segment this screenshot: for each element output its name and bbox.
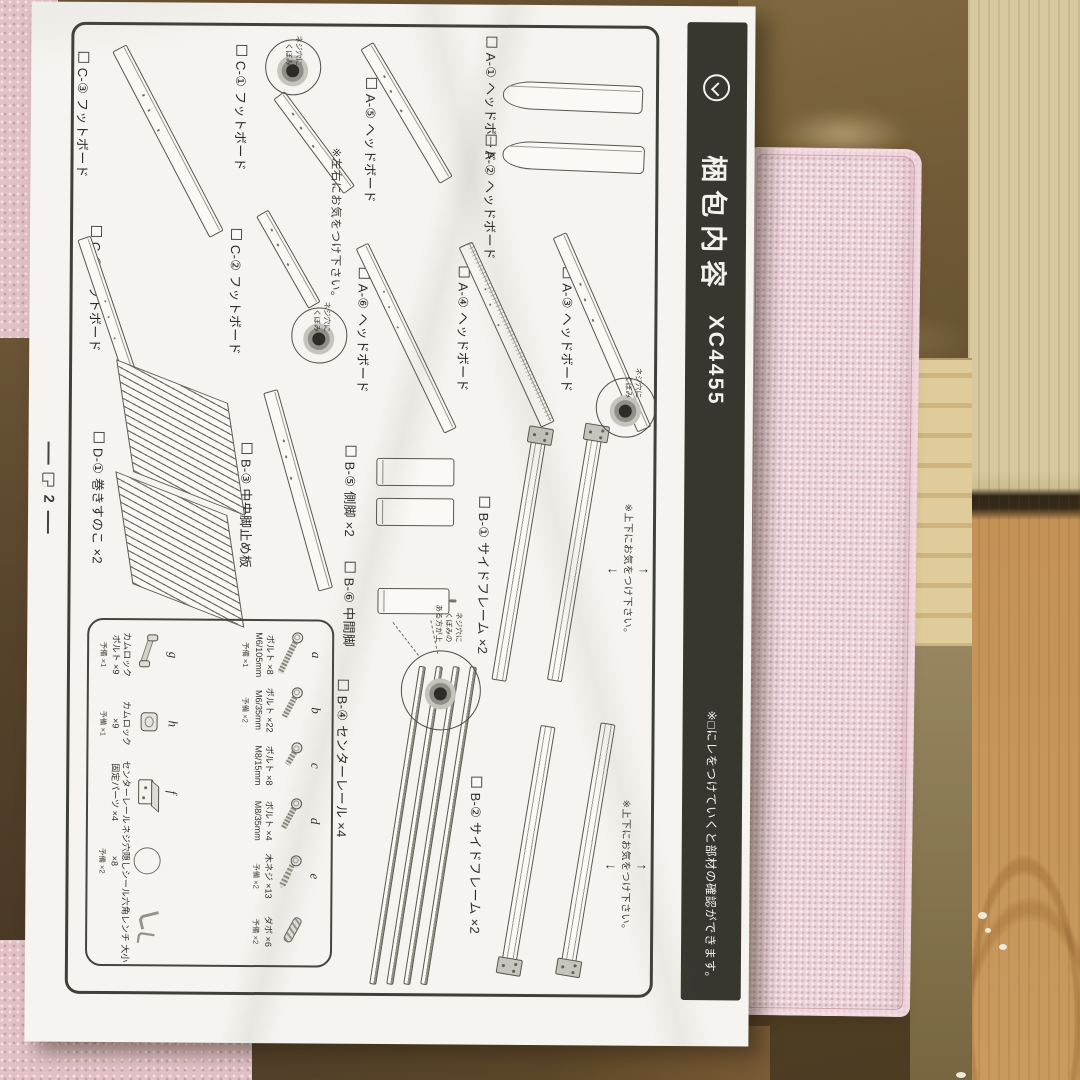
checkbox-c3 [78, 52, 89, 63]
checkbox-c4 [91, 226, 102, 237]
paint-speck [985, 928, 991, 933]
part-label-text: B-⑤ 側脚 ×2 [341, 462, 361, 538]
hardware-label: 六角レンチ 大小 [119, 897, 131, 963]
wood-screw-icon [273, 851, 307, 901]
part-label-b4: B-④ センターレール ×4 [333, 680, 353, 838]
screw-head [291, 855, 302, 866]
hardware-label: センターレール固定パーツ ×4 [109, 761, 132, 824]
hardware-item-dowel: ダボ ×6予備 ×2 [250, 904, 323, 960]
hardware-box: aボルト ×8M6/105mm予備 ×1bボルト ×22M6/35mm予備 ×2… [85, 618, 334, 968]
page-title: 梱包内容 [696, 155, 736, 295]
hardware-label-line: M8/35mm [251, 801, 263, 841]
leg-pin [449, 599, 456, 602]
part-label-c1: C-① フットボード [231, 45, 251, 171]
page-number: 2 [40, 442, 57, 534]
hardware-spare-note: 予備 ×1 [240, 642, 251, 668]
hardware-spare-note: 予備 ×1 [98, 642, 109, 668]
title-bar: 梱包内容 XC4455 ※□にレをつけていくと部材の確認ができます。 [681, 22, 748, 1000]
hardware-item-e: e木ネジ ×13予備 ×2 [250, 848, 323, 904]
camlock-icon [132, 698, 166, 748]
part-label-text: A-③ ヘッドボード [558, 283, 578, 392]
part-label-b6: B-⑥ 中間脚 [340, 562, 360, 648]
bolt-long-icon [275, 630, 309, 680]
sideframe-bracket [527, 425, 554, 446]
hardware-label-line: カムロック [121, 632, 133, 677]
part-label-text: C-③ フットボード [73, 68, 93, 178]
hardware-label-line: 六角レンチ 大小 [119, 897, 131, 963]
checkbox-c1 [236, 45, 247, 56]
circle-chevron-icon [703, 74, 730, 101]
hardware-label-line: M8/15mm [252, 745, 264, 785]
paint-speck [978, 912, 987, 919]
pink-fabric-box [738, 147, 922, 1017]
camlock-body [141, 713, 158, 732]
fixing-block-body [139, 779, 154, 804]
paint-speck [956, 1072, 966, 1078]
caution-text: ※上下にお気をつけ下さい。 [621, 504, 637, 639]
part-leg-b5 [376, 458, 454, 487]
hex-wrench-large [138, 911, 162, 930]
hardware-item-a: aボルト ×8M6/105mm予備 ×1 [240, 627, 324, 683]
screw-hole-icon [434, 687, 447, 700]
hardware-item-screw-hole-sticker: ネジ穴隠しシール×8予備 ×2 [96, 832, 180, 890]
screw-hole-icon [312, 332, 325, 345]
hardware-label-line: ×8 [108, 825, 120, 897]
part-label-text: C-② フットボード [226, 245, 246, 355]
part-label-text: B-① サイドフレーム ×2 [474, 513, 494, 655]
page-number-value: 2 [40, 495, 56, 503]
bolt-shaft [285, 751, 297, 766]
hardware-letter: h [166, 720, 181, 727]
arrow-down-icon: ↓ [607, 567, 621, 575]
part-label-text: D-① 巻きすのこ ×2 [89, 448, 109, 564]
part-leg-b5 [376, 498, 454, 527]
part-label-b2: B-② サイドフレーム ×2 [466, 777, 486, 935]
checkbox-a2 [486, 135, 497, 146]
screw-hole-icon [619, 405, 632, 418]
bolt-shaft [282, 696, 298, 718]
arrow-up-icon: ↑ [638, 567, 652, 575]
checkbox-a1 [486, 37, 497, 48]
hardware-letter: c [308, 763, 323, 769]
hardware-label-line: ネジ穴隠しシール [120, 825, 132, 897]
checkbox-b5 [345, 446, 356, 457]
part-label-d1: D-① 巻きすのこ ×2 [89, 432, 109, 564]
camlock-bolt-icon [132, 630, 166, 680]
bracket-holes [602, 429, 605, 432]
part-label-text: A-② ヘッドボード [481, 151, 501, 260]
hardware-label-line: ボルト ×9 [110, 632, 122, 677]
part-label-text: A-⑥ ヘッドボード [354, 284, 374, 393]
hardware-item-b: bボルト ×22M6/35mm予備 ×2 [240, 682, 324, 738]
hardware-spare-note: 予備 ×1 [98, 710, 109, 736]
hardware-label-line: ボルト ×22 [263, 688, 275, 733]
camlock-bolt-disc [139, 660, 150, 667]
wood-strip-middle [910, 358, 972, 648]
hardware-item-f: fセンターレール固定パーツ ×4 [109, 764, 181, 821]
hardware-label-line: ボルト ×8 [263, 745, 275, 785]
hardware-row-1: aボルト ×8M6/105mm予備 ×1bボルト ×22M6/35mm予備 ×2… [238, 627, 324, 960]
hardware-label: ボルト ×22M6/35mm [252, 688, 275, 733]
bracket-holes [515, 963, 518, 966]
screw-hole-sticker-icon [131, 836, 165, 886]
part-label-c2: C-② フットボード [226, 229, 246, 355]
hardware-letter: b [309, 707, 324, 714]
hex-wrench-small [137, 931, 155, 945]
hardware-label: ボルト ×4M8/35mm [251, 801, 274, 841]
hardware-letter: g [167, 652, 182, 659]
wood-strip-shadow [910, 646, 972, 1080]
page-number-dash [47, 442, 49, 465]
checkbox-b4 [338, 680, 349, 691]
checkbox-b1 [479, 497, 490, 508]
model-number: XC4455 [703, 315, 728, 406]
arrow-down-icon: ↓ [605, 863, 619, 871]
hardware-spare-note: 予備 ×2 [250, 919, 261, 945]
screw-hole-icon [286, 64, 299, 77]
hardware-label: カムロック×9 [109, 701, 132, 746]
checkbox-c2 [231, 229, 242, 240]
screw-hole-4-callout-circle [401, 650, 482, 731]
caution-up-down-2: ↑※上下にお気をつけ下さい。↓ [604, 800, 650, 935]
hardware-label-line: センターレール [120, 761, 132, 824]
hardware-spare-note: 予備 ×2 [240, 697, 251, 723]
arrow-up-icon: ↑ [636, 863, 650, 871]
caution-text: ※上下にお気をつけ下さい。 [619, 800, 635, 935]
bolt-mid-icon [275, 685, 309, 735]
checkbox-a5 [366, 78, 377, 89]
manual-page: 梱包内容 XC4455 ※□にレをつけていくと部材の確認ができます。 A-① ヘ… [26, 3, 749, 1044]
hardware-item-c: cボルト ×8M8/15mm [252, 738, 324, 794]
hardware-letter: a [309, 652, 324, 659]
hardware-label: 木ネジ ×13 [262, 854, 274, 899]
part-label-a6: A-⑥ ヘッドボード [354, 268, 374, 393]
bolt-short-icon [274, 741, 308, 791]
hardware-letter: f [166, 791, 181, 795]
hardware-label-line: カムロック [121, 701, 133, 746]
bolt-shaft [277, 641, 297, 674]
part-label-c3: C-③ フットボード [73, 52, 93, 178]
hardware-label-line: 木ネジ ×13 [262, 854, 274, 899]
hardware-label-line: ボルト ×8 [264, 632, 276, 677]
caution-up-down-1: ↑※上下にお気をつけ下さい。↓ [606, 504, 652, 639]
hardware-label: ダボ ×6 [262, 916, 273, 947]
checkbox-d1 [94, 432, 105, 443]
instruction-sheet-paper: 梱包内容 XC4455 ※□にレをつけていくと部材の確認ができます。 A-① ヘ… [24, 1, 755, 1046]
hardware-item-g: gカムロックボルト ×9予備 ×1 [98, 626, 182, 684]
hardware-item-hex-wrench: 六角レンチ 大小 [119, 901, 180, 958]
caution-left-right: ※左右にお気をつけ下さい。 [328, 148, 345, 304]
hardware-spare-note: 予備 ×2 [250, 863, 261, 889]
hardware-row-2: gカムロックボルト ×9予備 ×1hカムロック×9予備 ×1fセンターレール固定… [96, 626, 182, 959]
hardware-label: ネジ穴隠しシール×8 [108, 825, 131, 897]
hardware-label: ボルト ×8M6/105mm [252, 632, 275, 677]
dowel-icon [273, 906, 307, 956]
callout-text: ネジ穴に くぼみの ある方が上 [434, 604, 464, 642]
hardware-label-line: ボルト ×4 [263, 801, 275, 841]
hardware-label-line: ×9 [109, 701, 121, 746]
hardware-item-h: hカムロック×9予備 ×1 [97, 695, 181, 753]
sticker-circle [134, 847, 161, 874]
part-label-a4: A-④ ヘッドボード [454, 266, 474, 391]
part-label-b5: B-⑤ 側脚 ×2 [341, 446, 361, 538]
hardware-item-d: dボルト ×4M8/35mm [251, 793, 323, 849]
part-label-text: B-② サイドフレーム ×2 [466, 793, 486, 935]
hardware-letter: d [308, 818, 323, 825]
fixing-block-icon [131, 767, 165, 817]
part-label-text: B-⑥ 中間脚 [340, 578, 359, 648]
part-label-text: A-⑤ ヘッドボード [361, 94, 381, 203]
bracket-holes [546, 432, 549, 435]
bracket-holes [574, 964, 577, 967]
checkbox-b2 [471, 777, 482, 788]
callout-text: ネジ穴に くぼみ [623, 368, 643, 399]
hardware-label-line: 固定パーツ ×4 [109, 761, 121, 824]
hardware-letter: e [308, 874, 323, 880]
part-label-text: B-④ センターレール ×4 [333, 696, 353, 838]
dowel-body [282, 916, 303, 944]
part-label-text: C-① フットボード [231, 61, 251, 171]
checkbox-b6 [345, 562, 356, 573]
callout-text: ネジ穴に くぼみ [283, 35, 303, 66]
hardware-label-line: M6/105mm [252, 632, 264, 677]
hardware-label-line: ダボ ×6 [262, 916, 273, 947]
part-label-a5: A-⑤ ヘッドボード [361, 78, 381, 203]
hex-wrench-icon [130, 905, 164, 955]
part-label-text: A-④ ヘッドボード [454, 282, 474, 391]
checkbox-b3 [241, 443, 252, 454]
camlock-bolt-disc [148, 634, 159, 641]
bolt-shaft [281, 807, 297, 829]
checklist-note: ※□にレをつけていくと部材の確認ができます。 [702, 710, 721, 984]
callout-text: ネジ穴に くぼみ [312, 301, 332, 332]
bolt-mid2-icon [274, 796, 308, 846]
part-label-a2: A-② ヘッドボード [481, 135, 501, 260]
page-number-dash [47, 511, 49, 534]
page-icon [42, 473, 54, 487]
hardware-label-line: M6/35mm [252, 688, 264, 733]
paint-speck [999, 944, 1007, 950]
hardware-spare-note: 予備 ×2 [97, 848, 108, 874]
hardware-label: ボルト ×8M8/15mm [252, 745, 275, 785]
photo-scene: 梱包内容 XC4455 ※□にレをつけていくと部材の確認ができます。 A-① ヘ… [0, 0, 1080, 1080]
hardware-label: カムロックボルト ×9 [110, 632, 133, 677]
screw-shaft [278, 864, 295, 890]
part-label-b1: B-① サイドフレーム ×2 [474, 497, 494, 655]
